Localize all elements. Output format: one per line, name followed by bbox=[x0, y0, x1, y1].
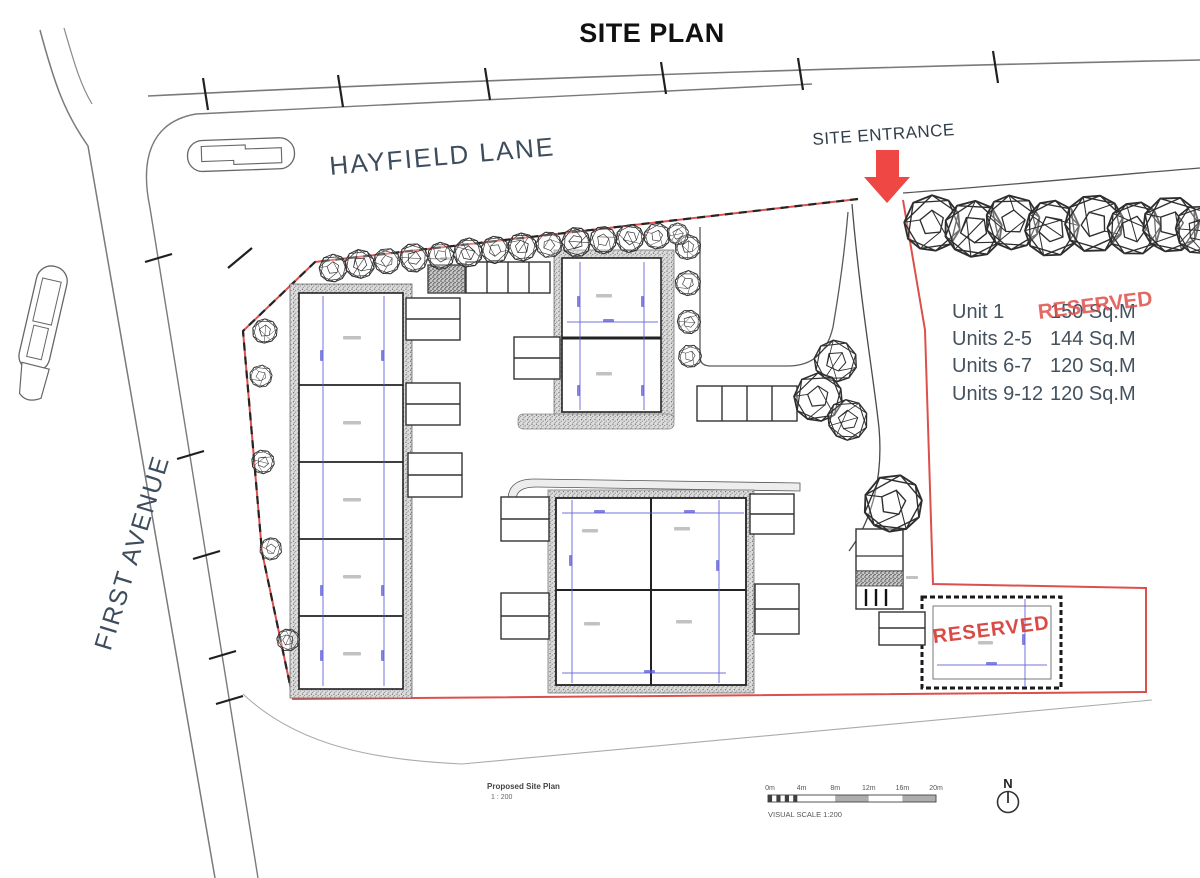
tree-icon bbox=[319, 254, 347, 282]
vehicle-icon bbox=[187, 137, 295, 172]
legend-area: 144 Sq.M bbox=[1050, 328, 1136, 350]
legend-unit: Unit 1 bbox=[952, 301, 1004, 323]
entrance-arrow-icon bbox=[864, 150, 910, 203]
vehicle-icon bbox=[16, 263, 70, 374]
scale-tick-label: 0m bbox=[765, 785, 775, 792]
tree-icon bbox=[858, 468, 928, 538]
scale-tick-label: 12m bbox=[862, 785, 876, 792]
site-entrance-label: SITE ENTRANCE bbox=[812, 120, 956, 149]
vehicle-icon bbox=[16, 362, 50, 402]
scale-tick-label: 8m bbox=[830, 785, 840, 792]
parking-pair bbox=[755, 584, 799, 634]
building-left-terrace bbox=[290, 284, 412, 698]
tree-icon bbox=[481, 236, 508, 263]
scale-tick-label: 20m bbox=[929, 785, 943, 792]
tree-icon bbox=[503, 228, 541, 266]
legend-unit: Units 6-7 bbox=[952, 355, 1032, 377]
parking-pair bbox=[879, 612, 925, 645]
parking-row bbox=[697, 386, 797, 421]
survey-ticks-top bbox=[203, 51, 998, 110]
legend-unit: Units 2-5 bbox=[952, 328, 1032, 350]
parking-pair bbox=[406, 298, 460, 340]
parking-pair bbox=[750, 494, 794, 534]
scale-tick-label: 4m bbox=[797, 785, 807, 792]
title-block-scale: 1 : 200 bbox=[491, 794, 513, 801]
entrance-plot-outline bbox=[700, 212, 848, 366]
parking-pair bbox=[501, 497, 549, 541]
legend-row: Units 9-12 120 Sq.M bbox=[952, 383, 1136, 405]
parking-pair bbox=[501, 593, 549, 639]
tree-icon bbox=[677, 310, 700, 333]
bin-cycle-store bbox=[856, 529, 918, 609]
corner-curb bbox=[64, 28, 92, 104]
site-plan-drawing: SITE PLAN HAYFIELD LANE SITE ENTRANCE FI… bbox=[0, 0, 1200, 878]
title-block: Proposed Site Plan 1 : 200 bbox=[487, 782, 560, 801]
parking-pair bbox=[408, 453, 462, 497]
tree-icon bbox=[340, 244, 379, 283]
vehicles bbox=[16, 137, 295, 402]
scale-bar-segments bbox=[768, 795, 936, 802]
parking-row bbox=[466, 262, 550, 293]
bottom-curb bbox=[243, 694, 1152, 764]
scale-tick-label: 16m bbox=[896, 785, 910, 792]
scale-caption: VISUAL SCALE 1:200 bbox=[768, 810, 842, 819]
north-indicator: N bbox=[998, 776, 1019, 813]
parking-pair bbox=[514, 337, 560, 379]
legend-row: Units 2-5 144 Sq.M bbox=[952, 328, 1136, 350]
road-label-hayfield-lane: HAYFIELD LANE bbox=[328, 131, 556, 181]
parking-pair bbox=[406, 383, 460, 425]
north-label: N bbox=[1003, 776, 1012, 791]
road-label-first-avenue: FIRST AVENUE bbox=[89, 452, 175, 654]
legend-area: 120 Sq.M bbox=[1050, 383, 1136, 405]
page-title: SITE PLAN bbox=[579, 18, 725, 48]
tree-icon bbox=[562, 228, 591, 257]
legend-unit: Units 9-12 bbox=[952, 383, 1043, 405]
unit-schedule-legend: Unit 1 150 Sq.M Units 2-5 144 Sq.M Units… bbox=[952, 287, 1154, 405]
bin-store-hatch bbox=[428, 265, 465, 293]
tree-icon bbox=[400, 244, 428, 272]
scale-tick-labels: 0m 4m 8m 12m 16m 20m bbox=[765, 785, 943, 792]
tree-icon bbox=[245, 360, 276, 391]
tree-icon bbox=[253, 319, 277, 343]
legend-area: 120 Sq.M bbox=[1050, 355, 1136, 377]
legend-row: Units 6-7 120 Sq.M bbox=[952, 355, 1136, 377]
tree-icon bbox=[369, 243, 404, 278]
site-top-edge bbox=[903, 168, 1200, 193]
scale-bar: 0m 4m 8m 12m 16m 20m VISUAL SCALE 1:200 bbox=[765, 785, 943, 819]
title-block-name: Proposed Site Plan bbox=[487, 782, 560, 791]
